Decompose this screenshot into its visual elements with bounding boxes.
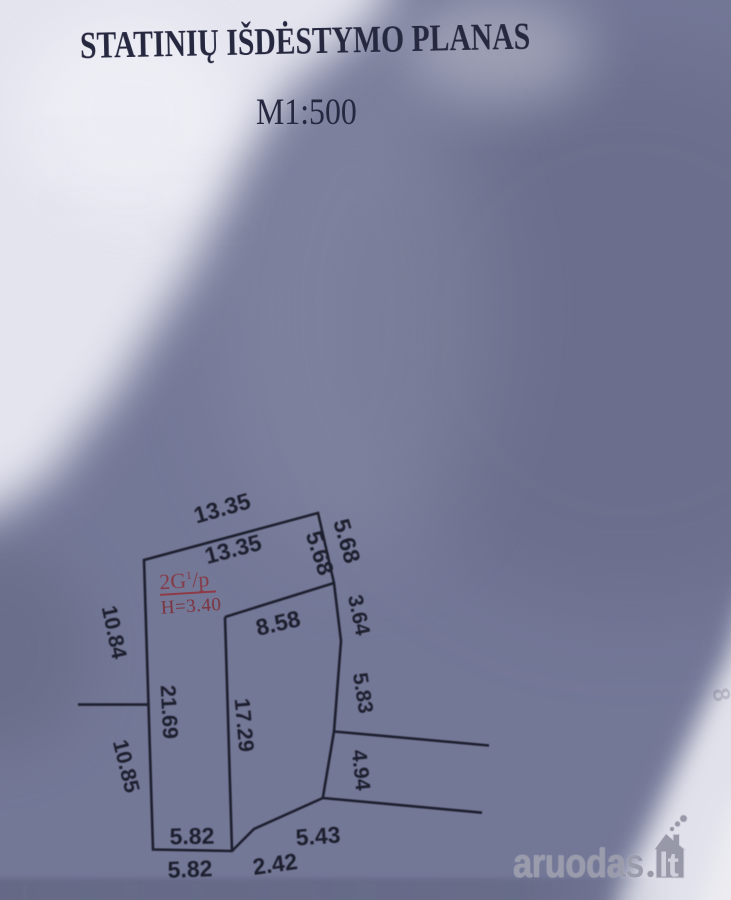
svg-text:lt: lt [659,847,678,885]
svg-text:5.83: 5.83 [348,671,377,715]
svg-text:13.35: 13.35 [202,529,265,569]
svg-text:5.43: 5.43 [295,821,341,850]
svg-text:10.85: 10.85 [108,737,144,795]
svg-text:5.82: 5.82 [169,823,214,850]
svg-text:8.58: 8.58 [253,605,303,640]
svg-text:17.29: 17.29 [230,697,259,753]
svg-text:3.64: 3.64 [343,593,374,638]
svg-text:13.35: 13.35 [191,488,254,529]
svg-text:10.84: 10.84 [97,603,132,661]
svg-text:5.82: 5.82 [167,855,213,883]
svg-text:21.69: 21.69 [156,685,183,740]
svg-text:2.42: 2.42 [251,848,299,880]
svg-text:4.94: 4.94 [347,749,374,792]
